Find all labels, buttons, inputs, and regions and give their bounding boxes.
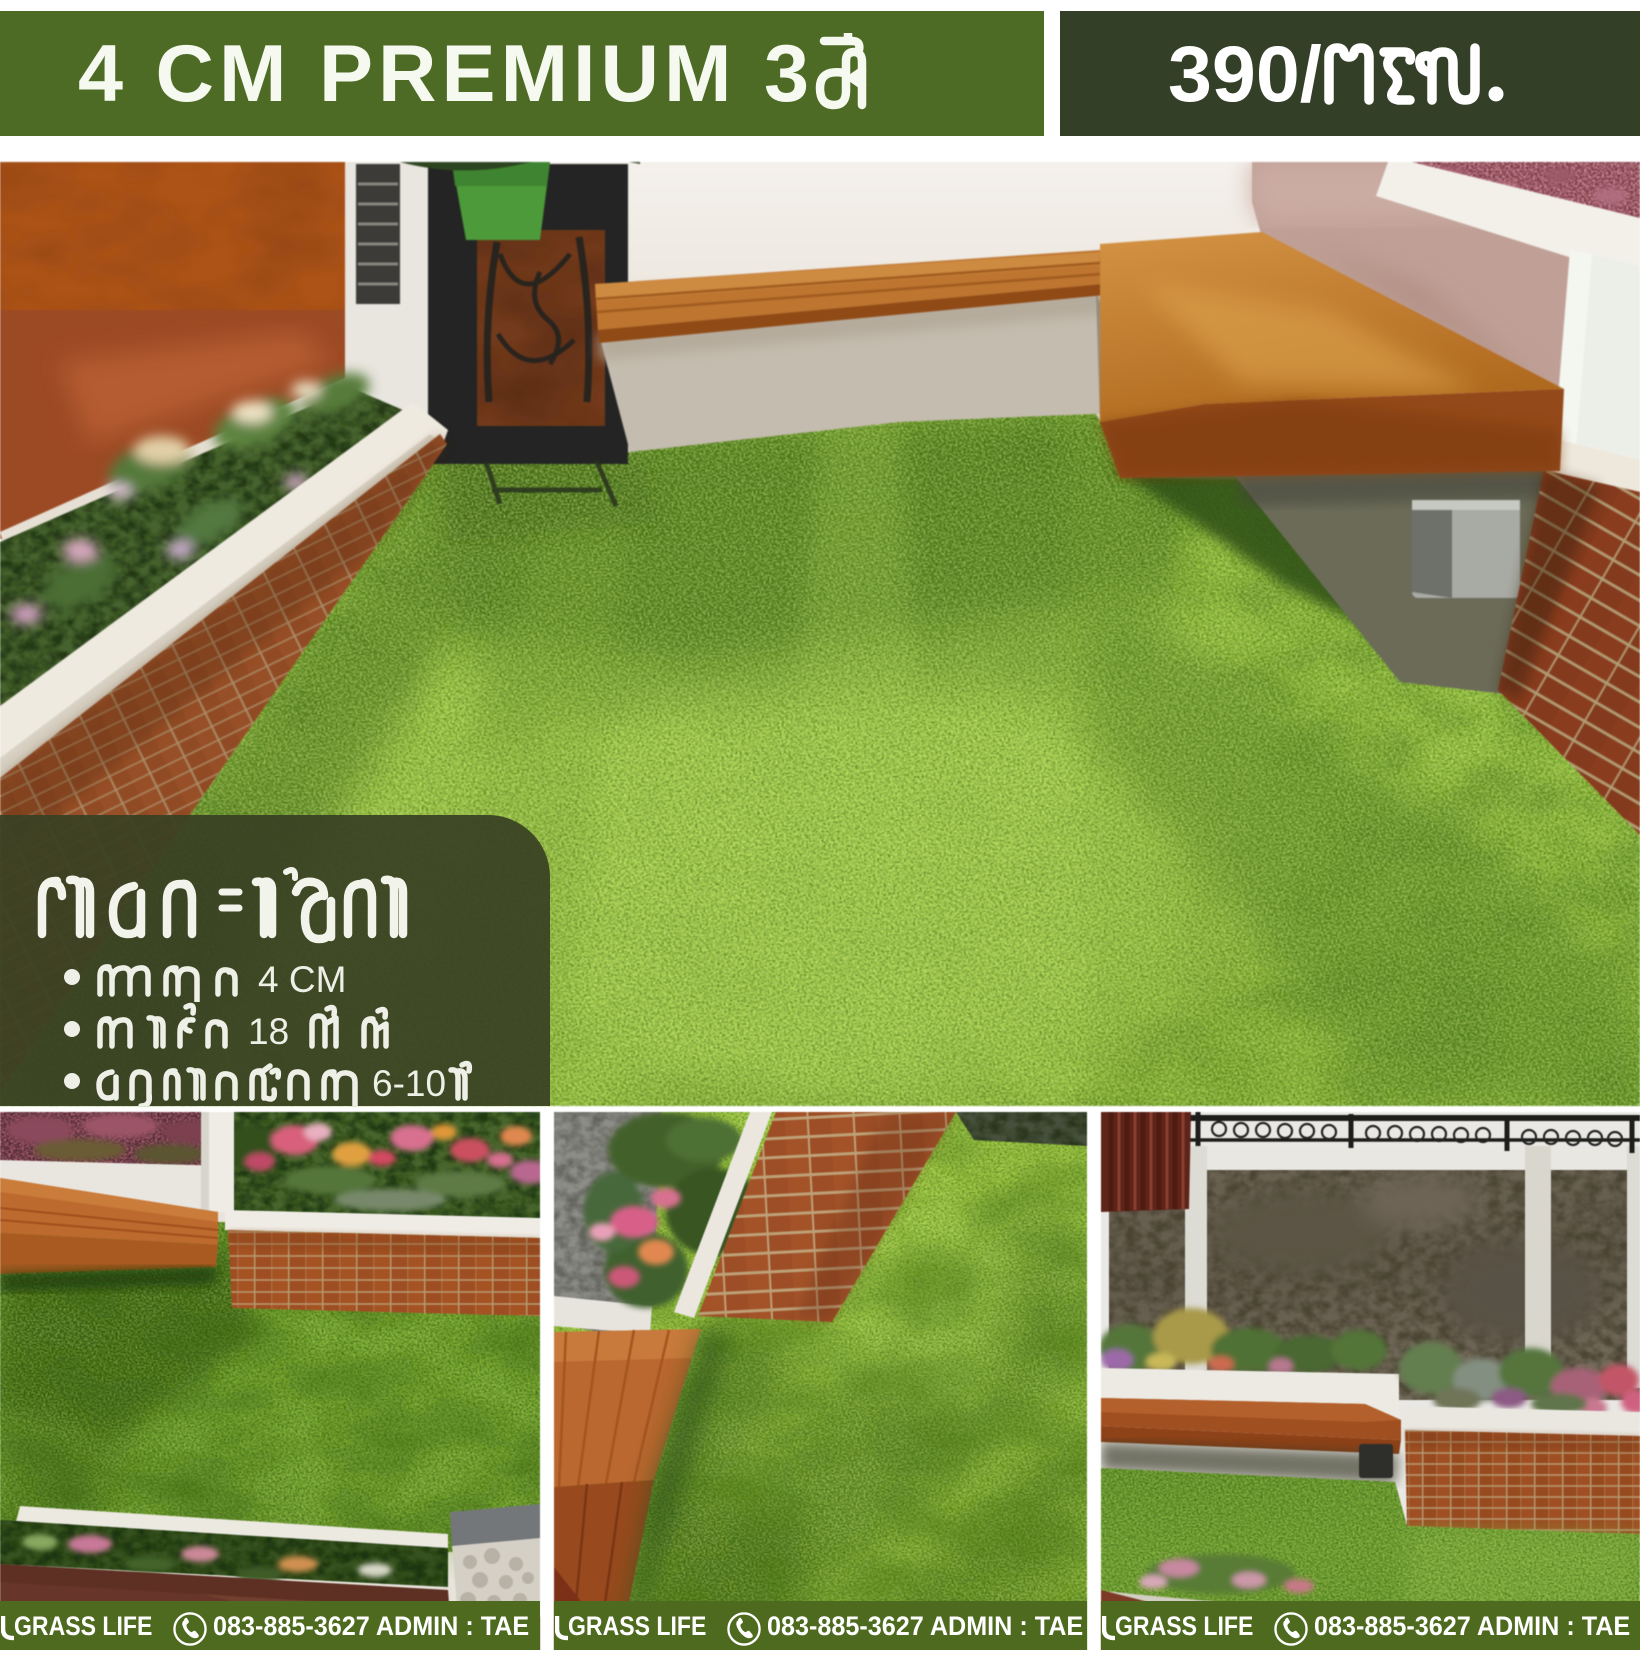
svg-text:4 CM: 4 CM	[258, 959, 346, 1000]
svg-text:18: 18	[248, 1011, 289, 1052]
svg-text:6-10: 6-10	[372, 1063, 446, 1104]
